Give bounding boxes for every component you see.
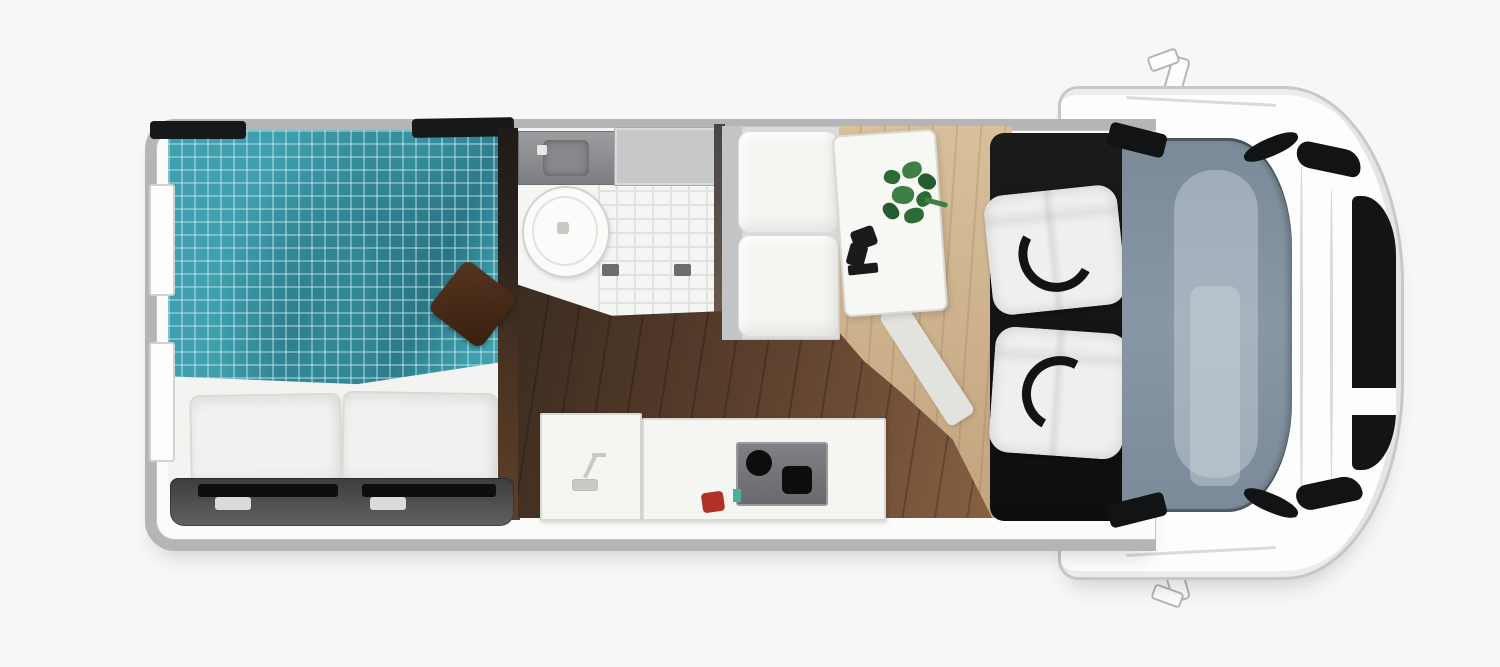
shower-tiled-floor bbox=[598, 182, 720, 318]
toilet bbox=[522, 186, 610, 278]
bathroom-faucet bbox=[537, 145, 547, 155]
dinette-bench bbox=[722, 126, 840, 340]
table-plant bbox=[878, 160, 940, 232]
kitchen-faucet-neck bbox=[583, 455, 597, 478]
roof-trim-left bbox=[150, 121, 246, 139]
red-utensil bbox=[701, 491, 726, 514]
rear-wall-window-2 bbox=[149, 342, 175, 462]
bench-cushion-2 bbox=[738, 235, 838, 337]
toilet-flush-button bbox=[557, 222, 569, 234]
rear-wall-window-1 bbox=[149, 184, 175, 296]
floor-plan-canvas bbox=[0, 0, 1500, 667]
steering-column-highlight bbox=[1190, 286, 1240, 486]
plant-leaf bbox=[882, 168, 902, 187]
garage-slot-1 bbox=[198, 484, 338, 497]
kitchen-sink-counter bbox=[540, 413, 642, 521]
wardrobe-divider bbox=[498, 128, 520, 520]
bed-duvet-teal-checked bbox=[168, 130, 512, 392]
bathroom-cabinet bbox=[614, 127, 722, 186]
hood-crease-line-2 bbox=[1330, 188, 1333, 480]
plant-leaf bbox=[891, 184, 916, 206]
hood-crease-line-1 bbox=[1300, 158, 1303, 510]
bench-cushion-1 bbox=[738, 131, 838, 233]
garage-handle-2 bbox=[370, 497, 406, 510]
pillow-left bbox=[189, 393, 343, 486]
swivel-seat-bottom bbox=[988, 325, 1130, 460]
bathroom-sink-counter bbox=[518, 131, 616, 185]
bathroom-sink-basin bbox=[543, 140, 589, 176]
swivel-seat-top bbox=[982, 183, 1128, 316]
front-grille bbox=[1352, 196, 1396, 470]
garage-handle-1 bbox=[215, 497, 251, 510]
shower-drain-1 bbox=[602, 264, 619, 276]
dashboard-windshield bbox=[1122, 138, 1292, 512]
garage-slot-2 bbox=[362, 484, 496, 497]
kitchen-faucet-base bbox=[572, 479, 598, 491]
stove-hob bbox=[736, 442, 828, 506]
burner-left bbox=[746, 450, 772, 476]
table-dark-tableware bbox=[846, 226, 882, 276]
plant-leaf bbox=[903, 206, 925, 224]
teal-accent-strip bbox=[733, 489, 741, 502]
pillow-right bbox=[341, 391, 499, 486]
shower-drain-2 bbox=[674, 264, 691, 276]
tableware-tray bbox=[848, 262, 879, 275]
burner-right bbox=[782, 466, 812, 494]
kitchen-faucet-spout bbox=[592, 453, 606, 457]
